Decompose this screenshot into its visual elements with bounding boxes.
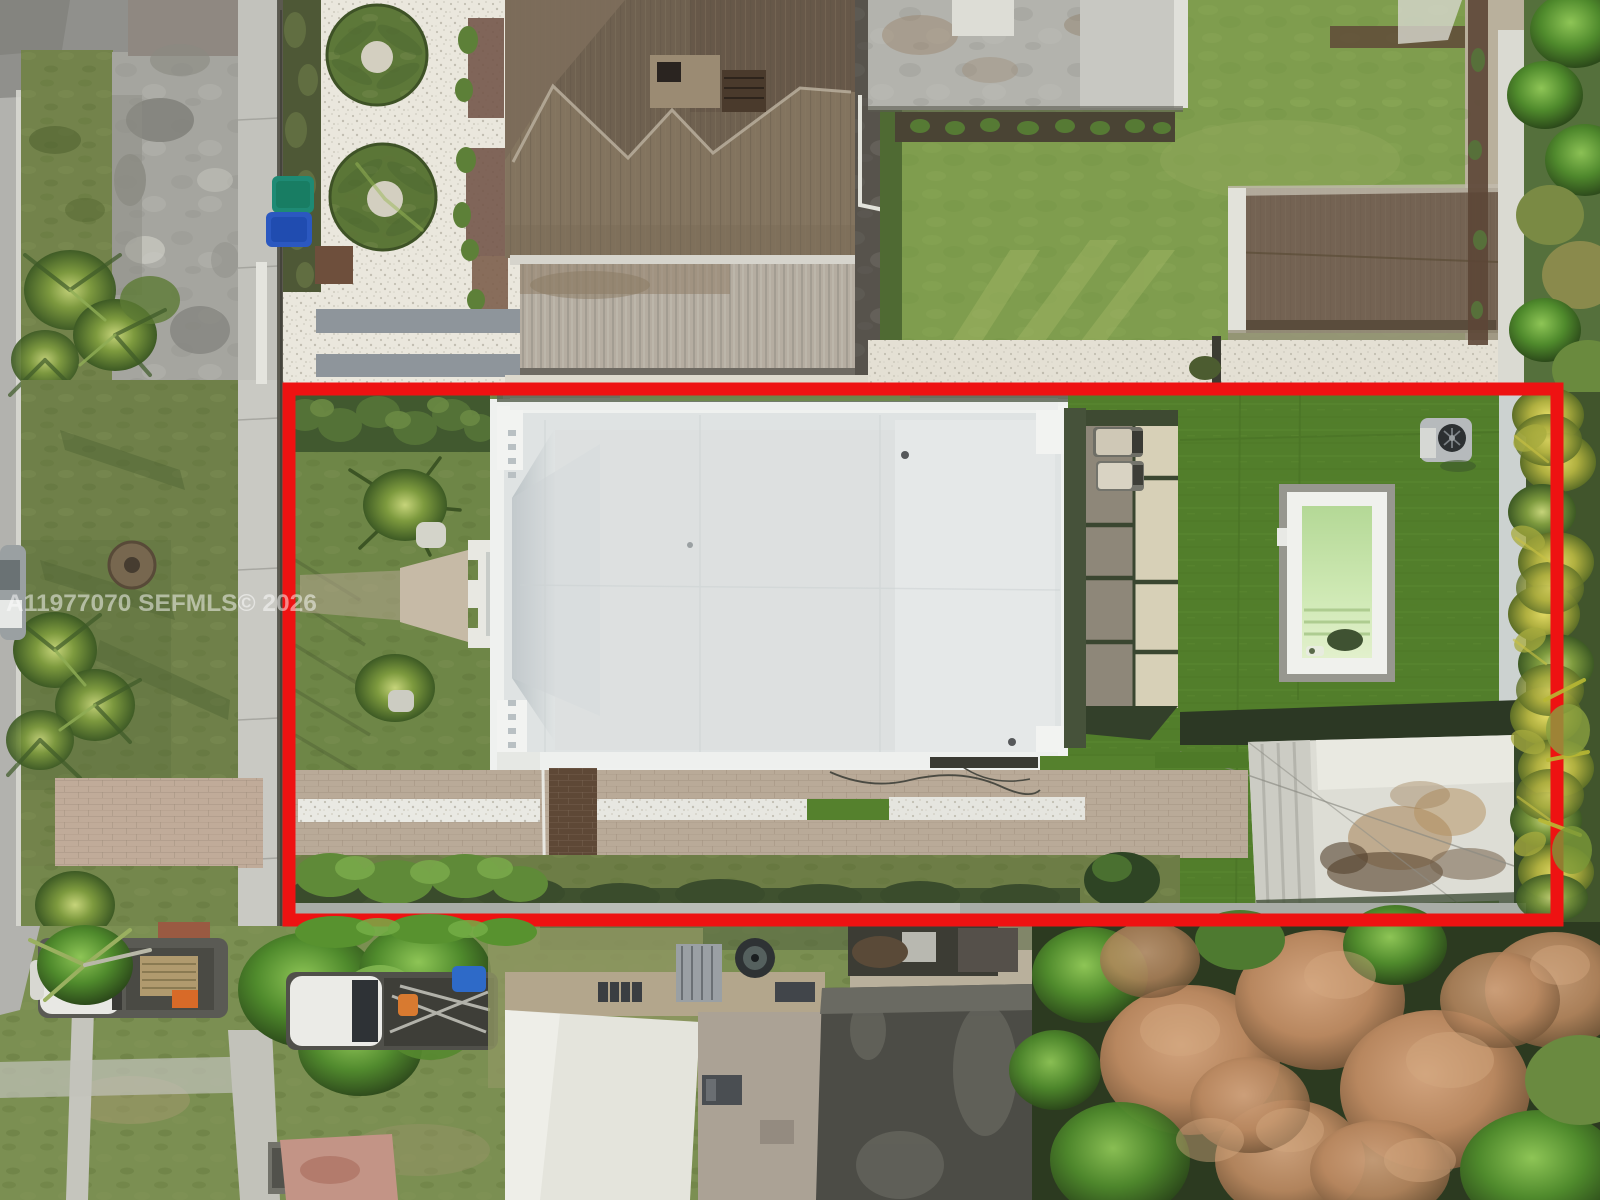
svg-text:A11977070 SEFMLS© 2026: A11977070 SEFMLS© 2026	[6, 590, 317, 617]
